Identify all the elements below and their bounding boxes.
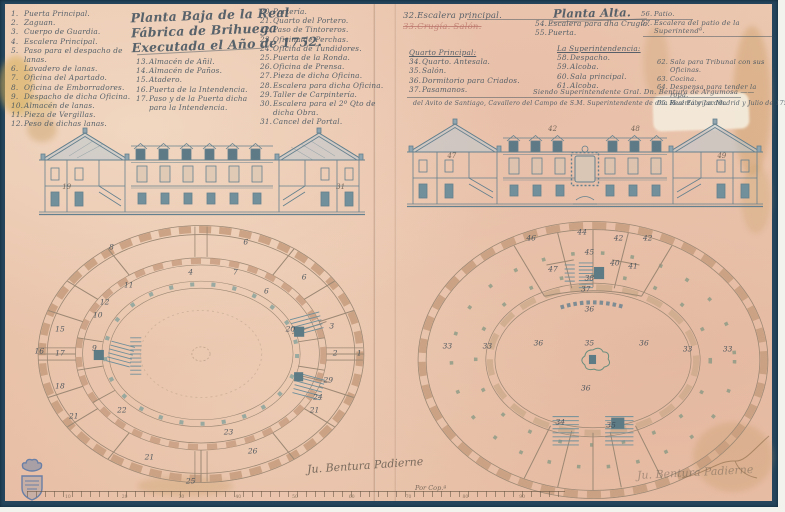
legend-entry-text: Puerta Principal. — [24, 9, 133, 18]
legend-entry: 15. Atadero. — [136, 75, 260, 84]
scale-tick-number: 20 — [122, 495, 128, 500]
elevation-drawing — [37, 126, 367, 218]
legend-entry-number: 22. — [260, 25, 273, 34]
room-number: 34 — [555, 418, 565, 427]
room-number: 8 — [109, 243, 114, 252]
room-number: 3 — [329, 322, 334, 331]
room-number: 42 — [614, 233, 624, 242]
legend-entry-text: Zaguan. — [24, 18, 133, 27]
room-number: 33 — [443, 341, 453, 350]
legend-entry-number: 2. — [11, 18, 24, 27]
legend-entry-text: Oficina de Tundidores. — [273, 44, 394, 53]
legend-entry-number: 20. — [260, 7, 273, 16]
aged-paper-sheet: 1. Puerta Principal. 2. Zaguan. 3. Cuerp… — [5, 4, 772, 501]
room-number: 36 — [585, 304, 595, 313]
legend-entry-text: Puerta de la Ronda. — [273, 53, 394, 62]
legend-entry-number: 35. — [409, 66, 422, 75]
room-number: 22 — [117, 406, 127, 415]
room-number: 9 — [92, 343, 97, 352]
scale-tick-number: 30 — [179, 495, 185, 500]
legend-entry-text: Salón. — [422, 66, 549, 75]
legend-entry-number — [136, 103, 149, 112]
legend-entry-text: Puerta de la Intendencia. — [149, 85, 260, 94]
legend-entry: 27. Pieza de dicha Oficina. — [260, 71, 394, 80]
room-number: 36 — [581, 384, 591, 393]
legend-entry-text: Sala principal. — [570, 72, 657, 81]
sheet-fold-line — [394, 4, 397, 501]
room-number: 44 — [577, 228, 587, 237]
floor-plan-drawing — [29, 220, 373, 492]
elevation-room-number: 49 — [717, 152, 726, 160]
legend-entry-text: Despacho. — [570, 53, 657, 62]
legend-entry-number: 30. — [260, 99, 273, 117]
scale-tick-number: 70 — [406, 495, 412, 500]
room-number: 25 — [186, 477, 196, 486]
legend-entry: 22. Paso de Tintoreros. — [260, 25, 394, 34]
legend-entry-number: 37. — [409, 85, 422, 94]
scale-tick-number: 40 — [235, 495, 241, 500]
legend-entry: 36. Dormitorio para Criados. — [409, 76, 549, 85]
legend-entry: 62. Sala para Tribunal con sus Oficinas. — [657, 58, 775, 75]
legend-entry: 9. Despacho de dicha Oficina. — [11, 92, 133, 101]
paper-crack — [677, 416, 772, 501]
legend-entry: 11. Pieza de Vergillas. — [11, 110, 133, 119]
legend-entry-text: Pieza de Vergillas. — [24, 110, 133, 119]
legend-entry-text: Puerta. — [548, 28, 655, 37]
legend-entry-number: 23. — [260, 35, 273, 44]
legend-entry: 16. Puerta de la Intendencia. — [136, 85, 260, 94]
elevation-drawing — [405, 116, 765, 211]
legend-entry-number: 11. — [11, 110, 24, 119]
legend-entry-number: 1. — [11, 9, 24, 18]
legend-entry-text: Oficina del Apartado. — [24, 73, 133, 82]
legend-entry: 2. Zaguan. — [11, 18, 133, 27]
legend-entry: 10. Almacén de lanas. — [11, 101, 133, 110]
legend-entry-number: 14. — [136, 66, 149, 75]
room-number: 33 — [723, 344, 733, 353]
legend-right-quarto: Quarto Principal: 34. Quarto. Antesala. … — [409, 48, 549, 94]
legend-entry: 25. Puerta de la Ronda. — [260, 53, 394, 62]
legend-entry-text: Escalera Principal. — [24, 37, 133, 46]
legend-entry-number: 32. — [403, 11, 417, 22]
legend-entry-text: Quarto. Antesala. — [422, 57, 549, 66]
legend-entry-number: 28. — [260, 81, 273, 90]
elevation-room-number: 19 — [62, 183, 71, 191]
legend-entry: 20. Portería. — [260, 7, 394, 16]
elevation-room-number: 31 — [336, 183, 345, 191]
legend-entry-number: 29. — [260, 90, 273, 99]
scale-tick-number: 60 — [349, 495, 355, 500]
manuscript-scan-page: 1. Puerta Principal. 2. Zaguan. 3. Cuerp… — [0, 0, 785, 512]
legend-entry: para la Intendencia. — [136, 103, 260, 112]
legend-entry: 8. Oficina de Emborradores. — [11, 83, 133, 92]
room-number: 37 — [581, 285, 591, 294]
legend-entry: 60. Sala principal. — [557, 72, 657, 81]
room-number: 1 — [357, 349, 362, 358]
legend-entry-number: 27. — [260, 71, 273, 80]
room-number: 12 — [100, 297, 110, 306]
legend-entry: 58. Despacho. — [557, 53, 657, 62]
legend-entry-text: Almacén de lanas. — [24, 101, 133, 110]
room-number: 42 — [643, 233, 653, 242]
elevation-section-left: 1931 — [37, 126, 367, 218]
room-number: 47 — [548, 265, 558, 274]
room-number: 46 — [526, 233, 536, 242]
legend-entry: 29. Taller de Carpintería. — [260, 90, 394, 99]
legend-entry: 56. Patio. — [641, 10, 781, 19]
legend-entry-number: 56. — [641, 10, 654, 19]
room-number: 45 — [585, 248, 595, 257]
legend-entry: 17. Paso y de la Puerta dicha — [136, 94, 260, 103]
legend-entry: 37. Pasamanos. — [409, 85, 549, 94]
legend-entry-number: 5. — [11, 46, 24, 64]
legend-divider-line — [407, 97, 741, 98]
legend-entry: 34. Quarto. Antesala. — [409, 57, 549, 66]
legend-bracket-line — [643, 36, 773, 37]
legend-entry-number: 60. — [557, 72, 570, 81]
legend-entry-number: 62. — [657, 58, 670, 75]
legend-entry-text: Portería. — [273, 7, 394, 16]
room-number: 11 — [124, 281, 134, 290]
legend-entry: 55. Puerta. — [535, 28, 655, 37]
legend-entry-text: Oficina de Emborradores. — [24, 83, 133, 92]
room-number: 40 — [610, 259, 620, 268]
legend-entry: 24. Oficina de Tundidores. — [260, 44, 394, 53]
legend-entry-number: 4. — [11, 37, 24, 46]
legend-entry-number: 3. — [11, 27, 24, 36]
legend-entry-text: Cuerpo de Guardia. — [24, 27, 133, 36]
legend-entry-number: 8. — [11, 83, 24, 92]
legend-entry-text: Despacho de dicha Oficina. — [24, 92, 133, 101]
elevation-room-number: 42 — [548, 125, 557, 133]
legend-entry-number: 24. — [260, 44, 273, 53]
room-number: 24 — [313, 392, 323, 401]
legend-entry-number: 57. — [641, 19, 654, 36]
legend-entry-text: Alcoba. — [570, 62, 657, 71]
legend-entry-number: 54. — [535, 19, 548, 28]
legend-entry: 7. Oficina del Apartado. — [11, 73, 133, 82]
legend-entry-number: 21. — [260, 16, 273, 25]
legend-entry-text: para la Intendencia. — [149, 103, 260, 112]
legend-entry-number: 12. — [11, 119, 24, 128]
legend-entry: 26. Oficina de Prensa. — [260, 62, 394, 71]
legend-right-superintendencia: La Superintendencia: 58. Despacho. 59. A… — [557, 44, 657, 90]
room-number: 10 — [93, 311, 103, 320]
legend-entry-number: 59. — [557, 62, 570, 71]
room-number: 4 — [188, 267, 193, 276]
legend-entry: 3. Cuerpo de Guardia. — [11, 27, 133, 36]
room-number: 20 — [286, 324, 296, 333]
scale-tick-number: 80 — [462, 495, 468, 500]
legend-entry-number: 34. — [409, 57, 422, 66]
room-number: 29 — [323, 376, 333, 385]
elevation-section-right: 47424849 — [405, 116, 765, 211]
legend-entry-number: 13. — [136, 57, 149, 66]
legend-entry-number: 7. — [11, 73, 24, 82]
room-number: 21 — [310, 406, 320, 415]
legend-entry-number: 9. — [11, 92, 24, 101]
legend-entry-number: 26. — [260, 62, 273, 71]
room-number: 2 — [333, 349, 338, 358]
scale-bar-numbers: 102030405060708090 — [65, 495, 525, 500]
legend-entry: 28. Escalera para dicha Oficina. — [260, 81, 394, 90]
legend-entry-number: 33. — [403, 22, 417, 33]
legend-entry-number: 17. — [136, 94, 149, 103]
legend-entry: 5. Paso para el despacho de lanas. — [11, 46, 133, 64]
scale-tick-number: 90 — [519, 495, 525, 500]
superintendent-note-1: Siendo Superintendente Gral. Dn. Bentura… — [533, 88, 754, 96]
room-number: 36 — [534, 338, 544, 347]
legend-entry: 6. Lavadero de lanas. — [11, 64, 133, 73]
legend-entry-number: 58. — [557, 53, 570, 62]
scale-tick-number: 10 — [65, 495, 71, 500]
room-number: 6 — [264, 286, 269, 295]
legend-entry-number: 15. — [136, 75, 149, 84]
legend-entry-text: Pieza de dicha Oficina. — [273, 71, 394, 80]
legend-entry-number: 10. — [11, 101, 24, 110]
room-number: 26 — [248, 447, 258, 456]
legend-column-3: 20. Portería. 21. Quarto del Portero. 22… — [260, 7, 394, 126]
legend-entry-text: Quarto del Portero. — [273, 16, 394, 25]
legend-entry-text: Taller de Carpintería. — [273, 90, 394, 99]
room-number: 23 — [224, 428, 234, 437]
legend-entry-number: 16. — [136, 85, 149, 94]
elevation-room-number: 48 — [631, 125, 640, 133]
legend-entry-text: Paso y de la Puerta dicha — [149, 94, 260, 103]
room-number: 6 — [243, 237, 248, 246]
legend-entry: 57. Escalera del patio de la Superintend… — [641, 19, 781, 36]
room-number: 35 — [585, 338, 595, 347]
legend-entry-number: 25. — [260, 53, 273, 62]
scale-tick-number: 50 — [292, 495, 298, 500]
legend-entry-text: Sala para Tribunal con sus Oficinas. — [670, 58, 775, 75]
legend-column-1: 1. Puerta Principal. 2. Zaguan. 3. Cuerp… — [11, 9, 133, 128]
room-number: 35 — [606, 421, 616, 430]
legend-entry-text: Patio. — [654, 10, 781, 19]
legend-entry: 23. Oficina de Perchas. — [260, 35, 394, 44]
floor-plan-ground: 8647661112101516179183212029242122212326… — [29, 220, 373, 492]
legend-entry-number: 55. — [535, 28, 548, 37]
legend-entry-text: Cocina. — [670, 75, 775, 83]
legend-entry-text: Escalera para el 2º Qto de dicha Obra. — [273, 99, 394, 117]
room-number: 21 — [145, 452, 155, 461]
legend-entry-text: Paso para el despacho de lanas. — [24, 46, 133, 64]
legend-section-header: Quarto Principal: — [409, 48, 549, 57]
room-number: 6 — [302, 273, 307, 282]
legend-entry: 4. Escalera Principal. — [11, 37, 133, 46]
legend-entry-text: Atadero. — [149, 75, 260, 84]
elevation-room-number: 47 — [447, 152, 456, 160]
room-number: 17 — [55, 349, 65, 358]
legend-entry: 30. Escalera para el 2º Qto de dicha Obr… — [260, 99, 394, 117]
legend-entry-text: Oficina de Prensa. — [273, 62, 394, 71]
legend-entry: 63. Cocina. — [657, 75, 775, 83]
legend-entry-text: Lavadero de lanas. — [24, 64, 133, 73]
legend-entry-text: Paso de Tintoreros. — [273, 25, 394, 34]
room-number: 38 — [585, 273, 595, 282]
room-number: 33 — [483, 341, 493, 350]
room-number: 15 — [55, 324, 65, 333]
legend-entry-text: Escalera del patio de la Superintendª. — [654, 19, 781, 36]
legend-column-2: 13. Almacén de Añil. 14. Almacén de Paño… — [136, 57, 260, 112]
legend-entry: 1. Puerta Principal. — [11, 9, 133, 18]
room-number: 33 — [683, 344, 693, 353]
legend-entry-number: 6. — [11, 64, 24, 73]
room-number: 16 — [35, 346, 45, 355]
superintendent-note-2: del Avito de Santiago, Cavallero del Cam… — [413, 100, 785, 107]
room-number: 21 — [69, 411, 79, 420]
legend-entry-text: Escalera para dicha Oficina. — [273, 81, 394, 90]
legend-entry-text: Almacén de Añil. — [149, 57, 260, 66]
legend-right-top: 56. Patio. 57. Escalera del patio de la … — [641, 10, 781, 36]
legend-entry: 59. Alcoba. — [557, 62, 657, 71]
legend-entry-text: Oficina de Perchas. — [273, 35, 394, 44]
legend-entry: 35. Salón. — [409, 66, 549, 75]
legend-section-header: La Superintendencia: — [557, 44, 657, 53]
room-number: 18 — [55, 381, 65, 390]
legend-entry: 14. Almacén de Paños. — [136, 66, 260, 75]
room-number: 41 — [628, 262, 638, 271]
legend-entry: 13. Almacén de Añil. — [136, 57, 260, 66]
legend-entry-text: Pasamanos. — [422, 85, 549, 94]
legend-entry-number: 63. — [657, 75, 670, 83]
legend-entry-text: Dormitorio para Criados. — [422, 76, 549, 85]
legend-entry: 21. Quarto del Portero. — [260, 16, 394, 25]
legend-entry-text: Almacén de Paños. — [149, 66, 260, 75]
legend-entry-number: 36. — [409, 76, 422, 85]
room-number: 7 — [233, 267, 238, 276]
room-number: 36 — [639, 338, 649, 347]
